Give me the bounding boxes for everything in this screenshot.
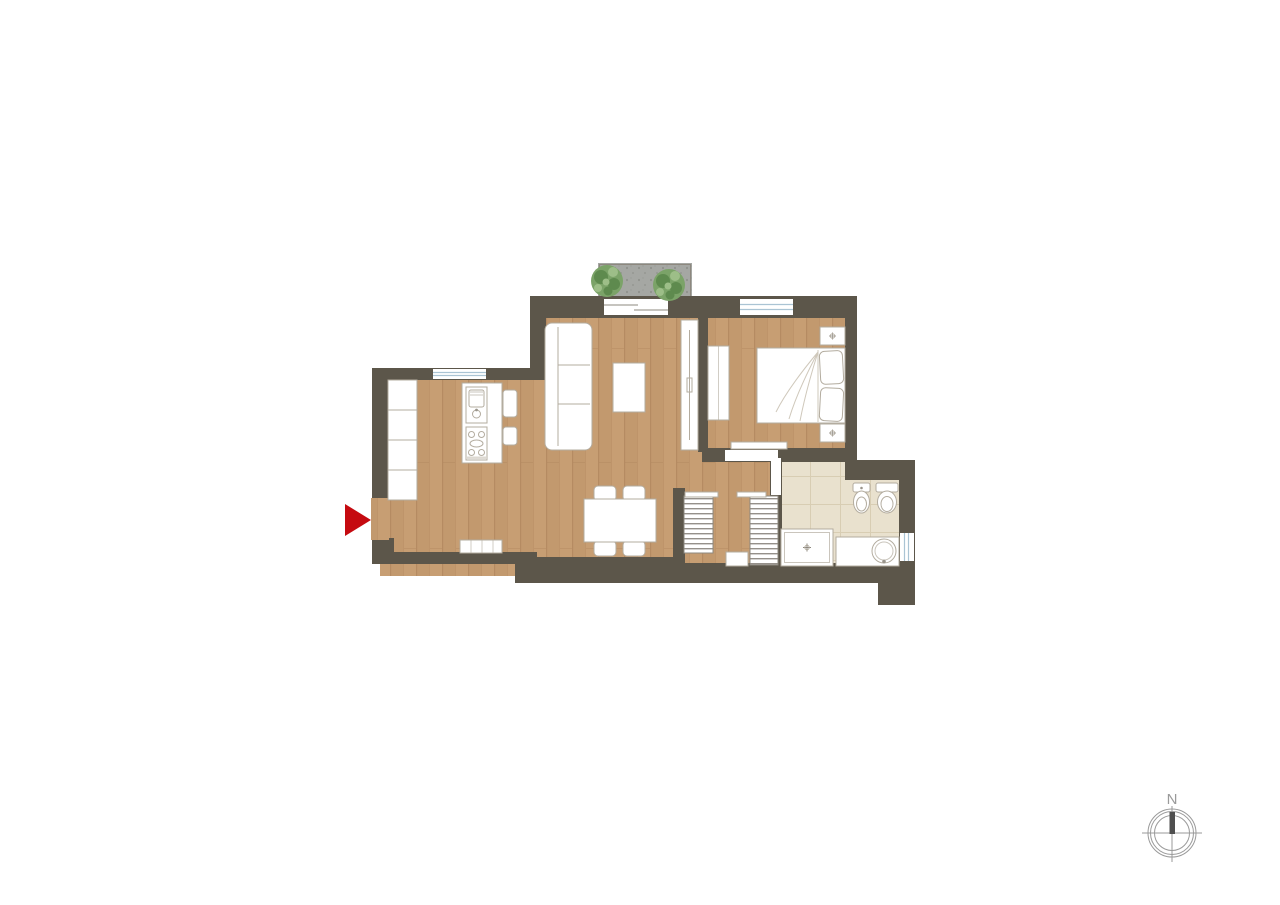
wall-step-southeast xyxy=(878,583,915,605)
toilet-icon xyxy=(876,483,898,513)
floor-plan-page: N xyxy=(0,0,1280,905)
pillow xyxy=(819,350,844,384)
sink-icon xyxy=(466,387,487,423)
kitchen-cabinets xyxy=(388,380,417,500)
wardrobe xyxy=(708,346,729,420)
sofa xyxy=(545,323,592,450)
entrance-arrow-icon xyxy=(345,504,371,536)
pillow xyxy=(819,387,844,421)
dining-table xyxy=(584,499,656,542)
kitchen-window xyxy=(433,369,486,379)
chair xyxy=(594,541,616,556)
compass-needle xyxy=(1170,812,1176,834)
coffee-table xyxy=(613,363,645,412)
chair xyxy=(623,541,645,556)
bar-stool xyxy=(503,390,517,417)
bedroom-window xyxy=(740,299,793,315)
double-bed xyxy=(757,348,845,423)
wall-living-west xyxy=(530,296,546,380)
bathroom-door xyxy=(771,458,781,495)
bedroom-pocket-door xyxy=(681,320,698,450)
balcony-sliding-door xyxy=(604,299,668,315)
washbasin-counter xyxy=(836,537,899,566)
shower-tray xyxy=(781,529,833,566)
bathroom-window xyxy=(900,533,914,561)
bar-stool xyxy=(503,427,517,445)
compass-north-label: N xyxy=(1167,791,1178,808)
radiator xyxy=(460,540,502,553)
plant-icon xyxy=(653,269,685,301)
kitchen-island xyxy=(462,383,502,463)
hall-cabinet xyxy=(726,552,748,566)
nightstand xyxy=(820,327,845,345)
wall-north xyxy=(530,296,856,318)
nightstand xyxy=(820,424,845,442)
wall-kitchen-south xyxy=(372,552,529,564)
compass-icon: N xyxy=(1142,791,1202,862)
plant-icon xyxy=(591,265,623,297)
wall-living-bedroom xyxy=(698,316,708,452)
louvered-closet xyxy=(684,492,718,553)
bidet-icon xyxy=(853,483,870,513)
wall-bedroom-east xyxy=(845,296,857,468)
stove-icon xyxy=(466,427,487,460)
wall-hall-spur xyxy=(673,488,685,583)
floor-plan: N xyxy=(0,0,1280,905)
wall-dining-south xyxy=(527,557,677,583)
